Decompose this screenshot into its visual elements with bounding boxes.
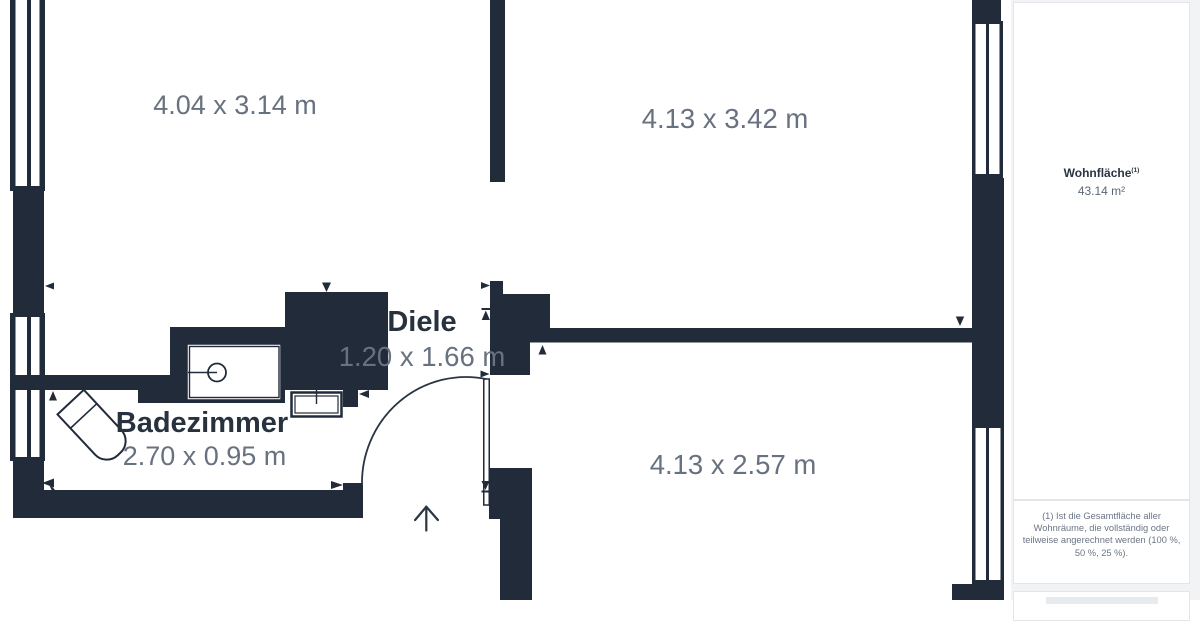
svg-text:4.13 x 3.42 m: 4.13 x 3.42 m xyxy=(642,103,809,134)
svg-text:Diele: Diele xyxy=(387,306,456,338)
svg-text:2.70 x 0.95 m: 2.70 x 0.95 m xyxy=(123,441,287,471)
svg-text:Badezimmer: Badezimmer xyxy=(116,407,288,439)
svg-text:1.20 x 1.66 m: 1.20 x 1.66 m xyxy=(339,341,506,372)
svg-text:4.04 x 3.14 m: 4.04 x 3.14 m xyxy=(153,90,317,120)
svg-text:4.13 x 2.57 m: 4.13 x 2.57 m xyxy=(650,449,817,480)
